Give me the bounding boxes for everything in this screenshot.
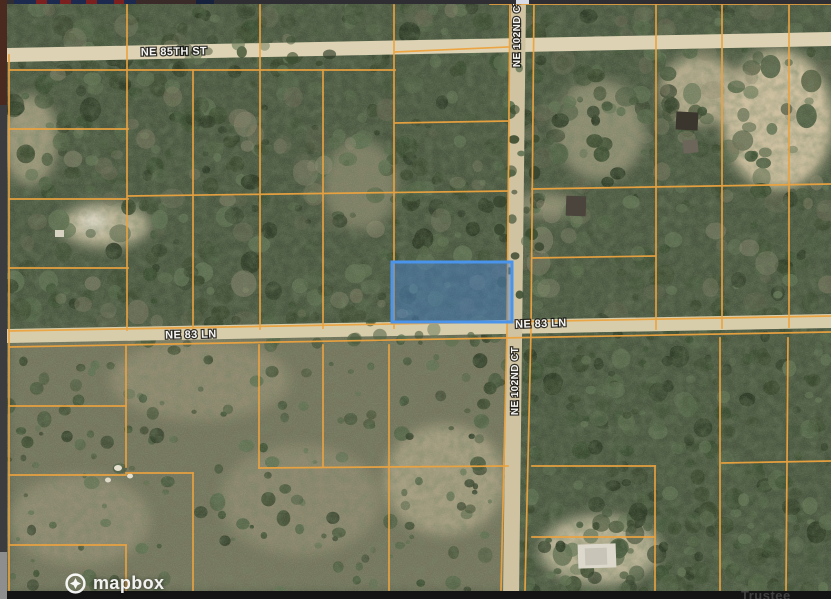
road-label-ne-85th-st: NE 85TH ST (141, 45, 208, 58)
road-label-ne-83-ln-right: NE 83 LN (515, 317, 567, 331)
map-screenshot: NE 85TH ST NE 102ND CT NE 83 LN NE 83 LN… (0, 0, 831, 599)
mapbox-wordmark: mapbox (93, 573, 164, 594)
road-label-ne-83-ln-left: NE 83 LN (165, 328, 217, 341)
mapbox-icon (64, 572, 87, 595)
left-edge-strip (0, 0, 7, 599)
map-canvas[interactable]: NE 85TH ST NE 102ND CT NE 83 LN NE 83 LN… (0, 0, 831, 599)
road-label-ne-102nd-ct-bottom: NE 102ND CT (510, 347, 521, 415)
top-edge-strip (0, 0, 831, 4)
highlighted-parcel[interactable] (392, 262, 512, 322)
mapbox-attribution[interactable]: mapbox (64, 572, 164, 595)
bottom-bar-partial-text: Trustee (741, 591, 791, 599)
road-label-ne-102nd-ct-top: NE 102ND CT (512, 0, 523, 67)
